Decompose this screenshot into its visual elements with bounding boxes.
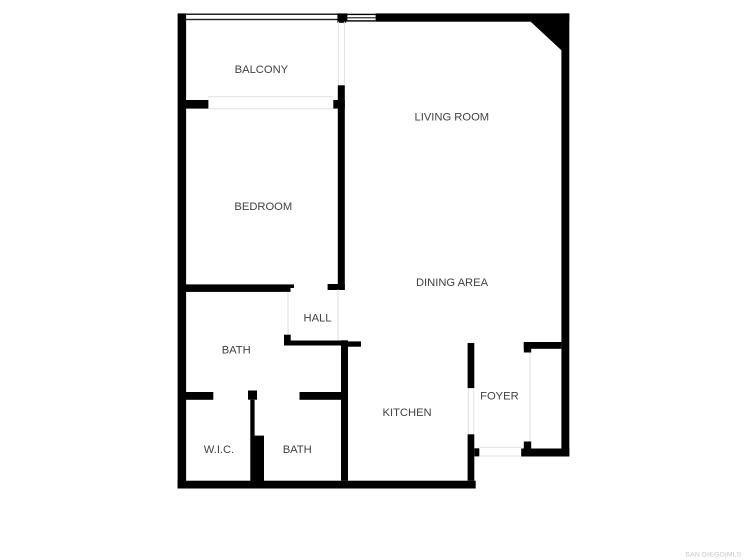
svg-text:KITCHEN: KITCHEN <box>383 407 432 419</box>
svg-text:BEDROOM: BEDROOM <box>234 201 292 213</box>
svg-text:SAN DIEGO|MLS: SAN DIEGO|MLS <box>685 552 741 559</box>
svg-text:BATH: BATH <box>222 345 251 357</box>
svg-text:FOYER: FOYER <box>480 391 519 403</box>
svg-text:HALL: HALL <box>304 313 332 325</box>
svg-text:W.I.C.: W.I.C. <box>204 444 234 456</box>
svg-text:DINING AREA: DINING AREA <box>416 277 489 289</box>
svg-text:BALCONY: BALCONY <box>235 64 289 76</box>
svg-text:BATH: BATH <box>283 444 312 456</box>
svg-text:LIVING ROOM: LIVING ROOM <box>415 112 490 124</box>
